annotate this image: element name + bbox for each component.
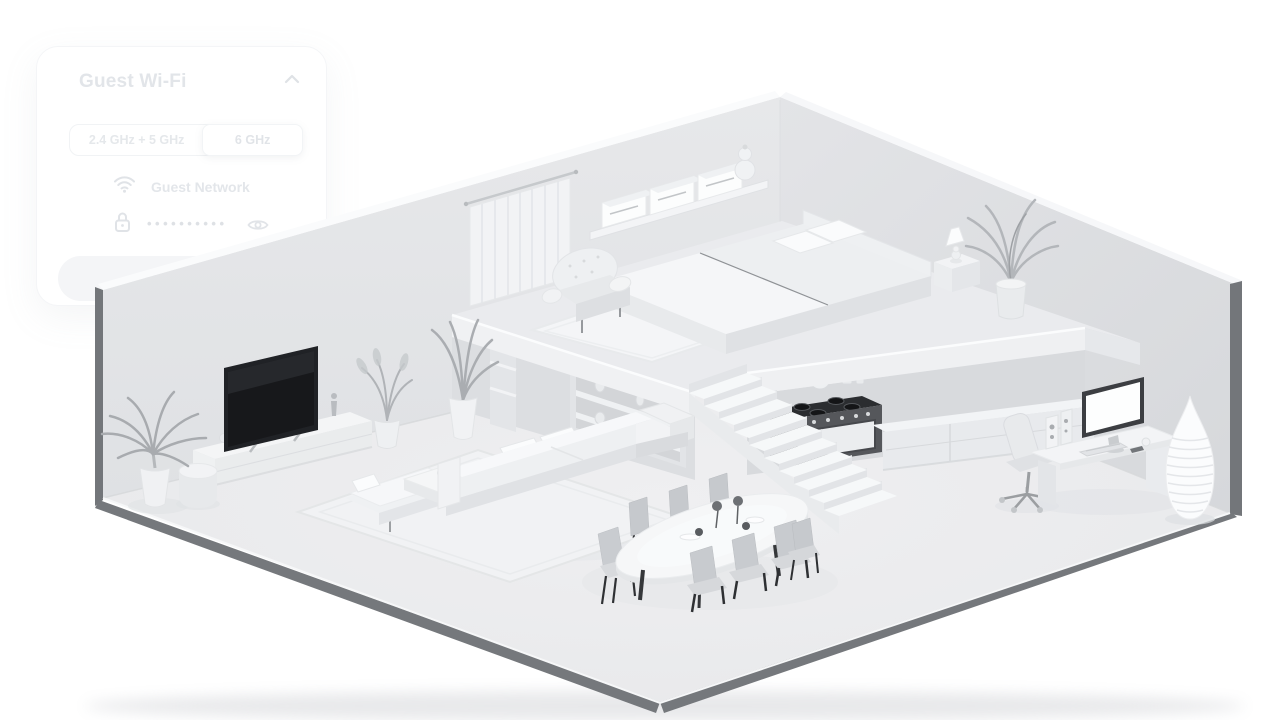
under-loft-recess <box>452 337 1085 480</box>
dining-chairs-back-row <box>629 473 729 582</box>
floor-vase <box>1165 396 1215 525</box>
dining-area <box>582 473 838 612</box>
living-room <box>102 320 694 582</box>
chaise-lounge <box>345 468 464 532</box>
home-office <box>995 377 1215 525</box>
curtains <box>464 170 578 306</box>
kitchen-cabinets <box>872 399 1094 470</box>
chevron-up-icon[interactable] <box>284 74 300 84</box>
tv-screen <box>228 351 314 447</box>
desk-mug <box>1142 438 1150 446</box>
loft-mezzanine <box>452 221 1140 415</box>
tall-plant <box>432 320 498 440</box>
living-rug <box>298 450 690 582</box>
wall-shelf <box>590 145 768 241</box>
lock-icon <box>113 211 132 239</box>
band-segmented-control: 2.4 GHz + 5 GHz 6 GHz <box>69 124 303 156</box>
sofa <box>438 403 694 516</box>
network-row: Guest Network <box>113 175 250 198</box>
band-option-2g5g[interactable]: 2.4 GHz + 5 GHz <box>70 125 203 155</box>
wifi-icon <box>113 175 136 198</box>
bookshelf <box>490 332 686 468</box>
plant-beside-tv <box>354 347 412 448</box>
tv <box>224 346 318 452</box>
staircase <box>689 364 897 534</box>
password-row: •••••••••• <box>113 211 269 239</box>
eye-icon[interactable] <box>247 218 269 232</box>
office-chair <box>999 411 1055 513</box>
screenshot-root: Guest Wi-Fi 2.4 GHz + 5 GHz 6 GHz Guest … <box>0 0 1280 720</box>
bedroom-loft <box>464 145 1058 363</box>
dining-table <box>607 476 817 608</box>
guest-wifi-card: Guest Wi-Fi 2.4 GHz + 5 GHz 6 GHz Guest … <box>36 46 327 306</box>
monitor-screen <box>1086 382 1140 433</box>
desk <box>1030 426 1178 506</box>
dining-chairs-front-row <box>687 520 811 612</box>
armchair <box>540 241 632 333</box>
coffee-table <box>404 463 496 506</box>
table-centerpiece <box>680 496 764 540</box>
band-option-6g[interactable]: 6 GHz <box>202 124 303 156</box>
desk-phone <box>1130 446 1144 453</box>
bed <box>598 210 931 354</box>
nightstand-lamp <box>934 227 980 292</box>
share-button[interactable]: Share Wi-Fi <box>58 256 309 301</box>
palm-plant <box>102 392 206 507</box>
bedroom-rug <box>532 300 742 362</box>
monitor <box>1082 377 1144 453</box>
card-title: Guest Wi-Fi <box>79 71 187 93</box>
dining-chair-left-end <box>598 527 638 604</box>
dining-chair-right-end <box>788 518 820 580</box>
kitchen-stove <box>770 366 882 466</box>
desk-speakers <box>1046 409 1072 449</box>
pouf <box>179 464 217 509</box>
masked-password: •••••••••• <box>147 216 228 231</box>
network-name: Guest Network <box>151 179 250 195</box>
loft-plant <box>966 200 1058 319</box>
keyboard <box>1080 443 1127 456</box>
tv-console <box>193 393 372 485</box>
